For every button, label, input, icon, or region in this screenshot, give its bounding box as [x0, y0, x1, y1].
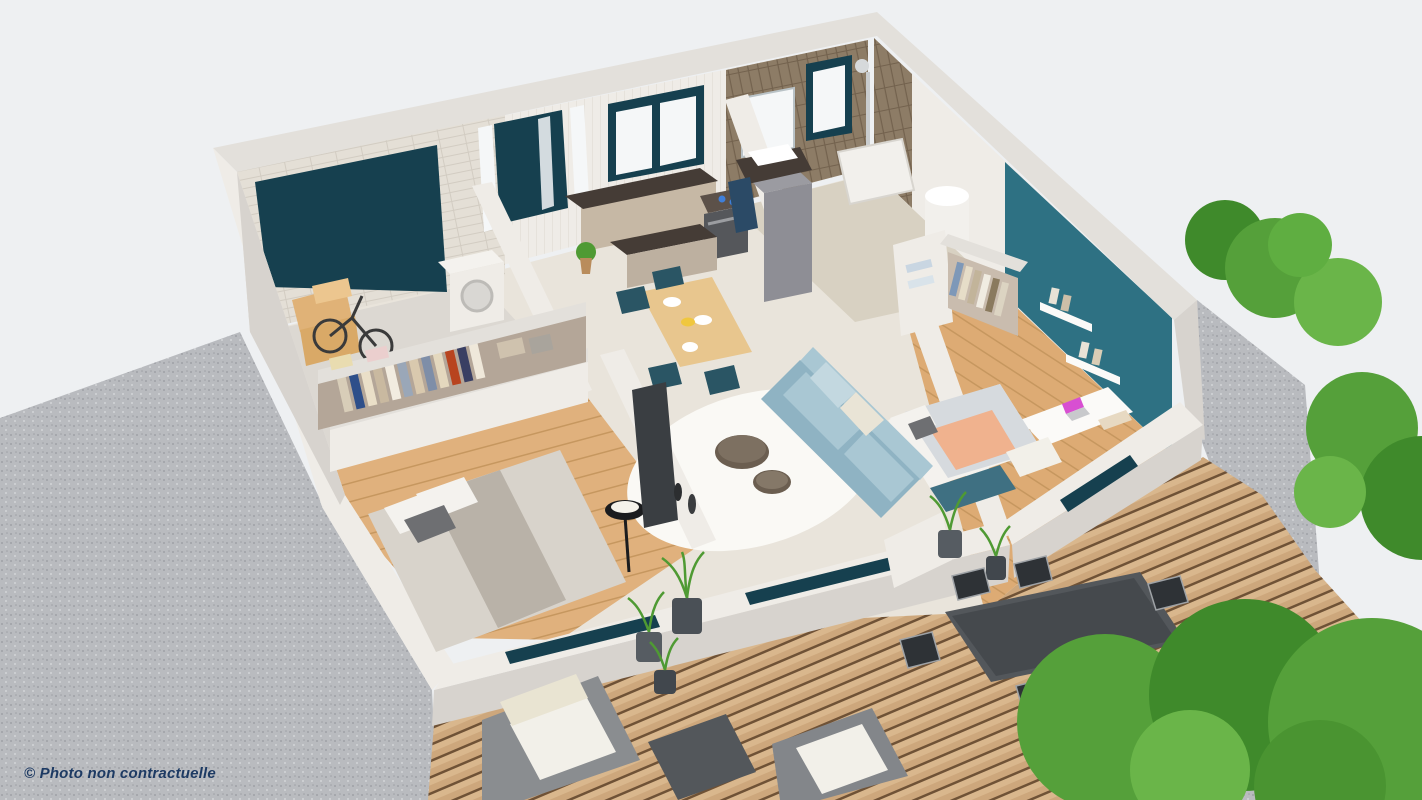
coffee-table-small-top: [756, 471, 788, 489]
planter-pot: [938, 530, 962, 558]
copyright-notice: © Photo non contractuelle: [24, 765, 216, 782]
planter-pot: [986, 556, 1006, 580]
bathroom-window-glass: [813, 65, 845, 133]
floorplan-canvas: [0, 0, 1422, 800]
vase-2: [688, 494, 696, 514]
bush-blob: [1268, 213, 1332, 277]
floorplan-render: © Photo non contractuelle: [0, 0, 1422, 800]
shower-head: [855, 59, 869, 73]
planter-pot: [654, 670, 676, 694]
kitchen-window-glass-left: [616, 105, 652, 175]
plate-1: [663, 297, 681, 307]
houseplant-pot: [580, 258, 592, 274]
plate-3: [682, 342, 698, 352]
kitchen-window-glass-right: [660, 96, 696, 166]
vase-1: [674, 483, 682, 501]
fridge-front: [764, 183, 812, 302]
bush-blob: [1294, 456, 1366, 528]
entry-door: [494, 110, 568, 224]
floor-lamp-light: [611, 501, 639, 513]
planter-pot: [636, 632, 662, 662]
coffee-table-large-top: [718, 435, 766, 463]
plate-2: [694, 315, 712, 325]
fruit-bowl: [681, 318, 695, 327]
water-heater-top: [925, 186, 969, 206]
washer-door: [462, 281, 492, 311]
planter-pot: [672, 598, 702, 634]
burner-1: [719, 196, 726, 203]
